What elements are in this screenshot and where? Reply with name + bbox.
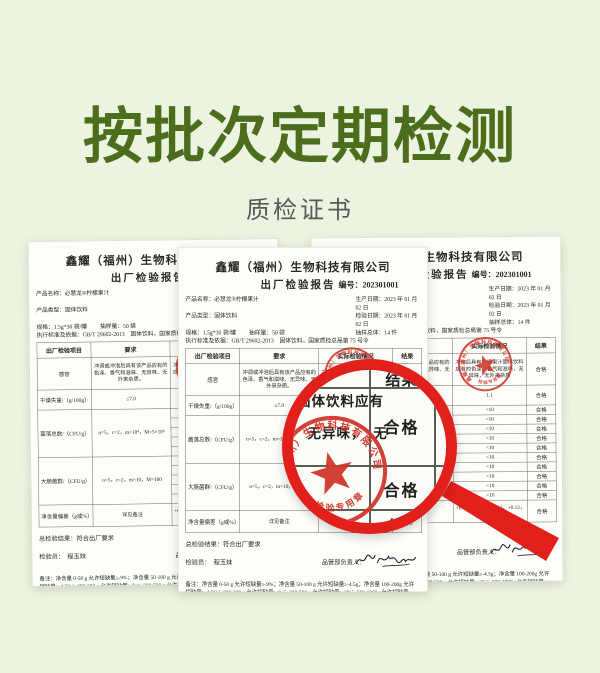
col-header-item: 出厂检验项目 xyxy=(37,342,91,358)
table-cell: 冲调或冲泡后具有该产品应有的色泽、香气和滋味、无异味、无外来杂质。 xyxy=(91,357,170,390)
meta-product-type: 产品类型：固体饮料 xyxy=(186,312,356,329)
overall-result: 总检验结果：符合出厂要求 xyxy=(186,539,421,549)
report-title-row: 出厂检验报告 编号：202301001 xyxy=(186,275,421,293)
table-cell: <10 xyxy=(453,443,527,453)
table-cell: 合格 xyxy=(527,471,556,481)
report-footer: 总检验结果：符合出厂要求 检验员： 程玉妹 品管部负责人： 备注：净含量 0-5… xyxy=(186,539,421,592)
manager-signature xyxy=(487,539,552,559)
table-cell: 大肠菌群/（CFU/g） xyxy=(186,463,240,511)
col-header-req: 要求 xyxy=(91,341,170,357)
report-number: 编号：202301001 xyxy=(472,267,532,279)
report-note: 备注：净含量 0-50 g 允许短缺量≥-9%；净含量 50-100 g 允许短… xyxy=(186,581,416,592)
table-cell: n=5，c=2，m=10⁴，M=5×10⁵ xyxy=(92,409,172,457)
meta-standard: 执行标准及依据：GB/T 29602-2013 固体饮料，国家质检总局第 75 … xyxy=(186,337,421,345)
meta-insp-date: 检验日期：2023 年 01 月 02 日 xyxy=(489,301,554,318)
banner-subtitle: 质检证书 xyxy=(0,190,600,225)
table-cell: 合格 xyxy=(527,405,556,415)
table-cell: 大肠菌群/（CFU/g） xyxy=(38,457,93,505)
manager-signature xyxy=(353,550,418,570)
table-cell: 感官 xyxy=(186,364,240,396)
table-cell: 合格 xyxy=(527,433,556,443)
table-cell: 合格 xyxy=(527,452,556,462)
table-cell: <10 xyxy=(453,481,527,491)
table-cell: <10 xyxy=(453,462,527,472)
table-cell: 合格 xyxy=(526,353,555,385)
table-cell: <10 xyxy=(453,424,527,434)
table-cell: 合格 xyxy=(527,443,556,453)
table-cell: 合格 xyxy=(527,385,556,405)
meta-spec: 规格：1.5g*30 袋/罐 xyxy=(186,329,236,337)
table-cell: 菌落总数/（CFU/g） xyxy=(38,410,93,458)
table-cell: 合格 xyxy=(527,500,556,522)
magnified-result-header: 结果 xyxy=(370,370,433,390)
table-cell: +0.14，+0.11，+0.13，+0.12，+0.12，+0.14 xyxy=(453,500,527,523)
meta-sample-total: 抽样总体：14 件 xyxy=(489,318,554,327)
table-cell: n=5，c=2，m=10，M=100 xyxy=(92,456,172,504)
table-cell: 合格 xyxy=(527,481,556,491)
report-meta: 产品名称：必慧龙®柠檬果汁 生产日期：2023 年 01 月 02 日 产品类型… xyxy=(186,296,421,346)
report-number: 编号：202301001 xyxy=(339,278,399,290)
col-header-req: 要求 xyxy=(240,348,319,364)
report-title: 出厂检验报告 xyxy=(261,277,336,292)
table-cell: 干燥失重/（g/100g） xyxy=(37,390,91,411)
table-cell: <10 xyxy=(453,491,527,501)
magnifier-content: 结果 合格 合格 合格 固体饮料应有 无异味， 无 xyxy=(293,370,446,523)
meta-insp-date: 检验日期：2023 年 01 月 02 日 xyxy=(356,312,421,329)
table-cell: 合格 xyxy=(527,462,556,472)
meta-prod-date: 生产日期：2023 年 01 月 02 日 xyxy=(489,285,554,302)
magnified-column-line xyxy=(434,370,436,523)
table-cell: <10 xyxy=(453,405,527,415)
table-cell: 感官 xyxy=(37,358,91,391)
magnifier-lens: 结果 合格 合格 合格 固体饮料应有 无异味， 无 xyxy=(282,359,457,534)
meta-prod-date: 生产日期：2023 年 01 月 02 日 xyxy=(356,296,421,313)
table-cell: 净含量偏差（g或%） xyxy=(39,505,93,528)
banner-title: 按批次定期检测 xyxy=(0,104,600,170)
table-cell: 净含量偏差（g或%） xyxy=(186,511,240,533)
table-cell: <10 xyxy=(453,415,527,425)
col-header-item: 出厂检验项目 xyxy=(186,348,240,364)
inspector: 检验员： 程玉妹 xyxy=(186,557,233,567)
table-cell: 详见备注 xyxy=(93,504,172,527)
col-header-result: 结果 xyxy=(526,337,555,353)
table-cell: ≤7.0 xyxy=(91,389,170,410)
table-cell: 合格 xyxy=(527,414,556,424)
table-cell: 合格 xyxy=(527,424,556,434)
meta-sample-total: 抽样总体：14 件 xyxy=(356,329,421,337)
table-cell: <10 xyxy=(453,472,527,482)
inspector: 检验员： 程玉妹 xyxy=(39,551,86,561)
meta-product-name: 产品名称：必慧龙®柠檬果汁 xyxy=(186,296,356,313)
table-cell: <10 xyxy=(453,434,527,444)
table-cell: 合格 xyxy=(527,490,556,500)
promo-banner: 按批次定期检测 质检证书 鑫耀（福州）生物科技有限公司 出厂检验报告 编号：20… xyxy=(0,0,600,673)
col-header-result: 结果 xyxy=(393,348,422,364)
table-cell: 干燥失重/（g/100g） xyxy=(186,396,240,416)
company-name: 鑫耀（福州）生物科技有限公司 xyxy=(186,258,421,273)
report-title: 出厂检验报告 xyxy=(111,269,186,285)
table-cell: 菌落总数/（CFU/g） xyxy=(186,416,240,464)
meta-sample-qty: 抽样量：50 袋 xyxy=(249,329,285,337)
table-cell: <10 xyxy=(453,453,527,463)
meta-spec-row: 规格：1.5g*30 袋/罐 抽样量：50 袋 xyxy=(186,329,356,337)
